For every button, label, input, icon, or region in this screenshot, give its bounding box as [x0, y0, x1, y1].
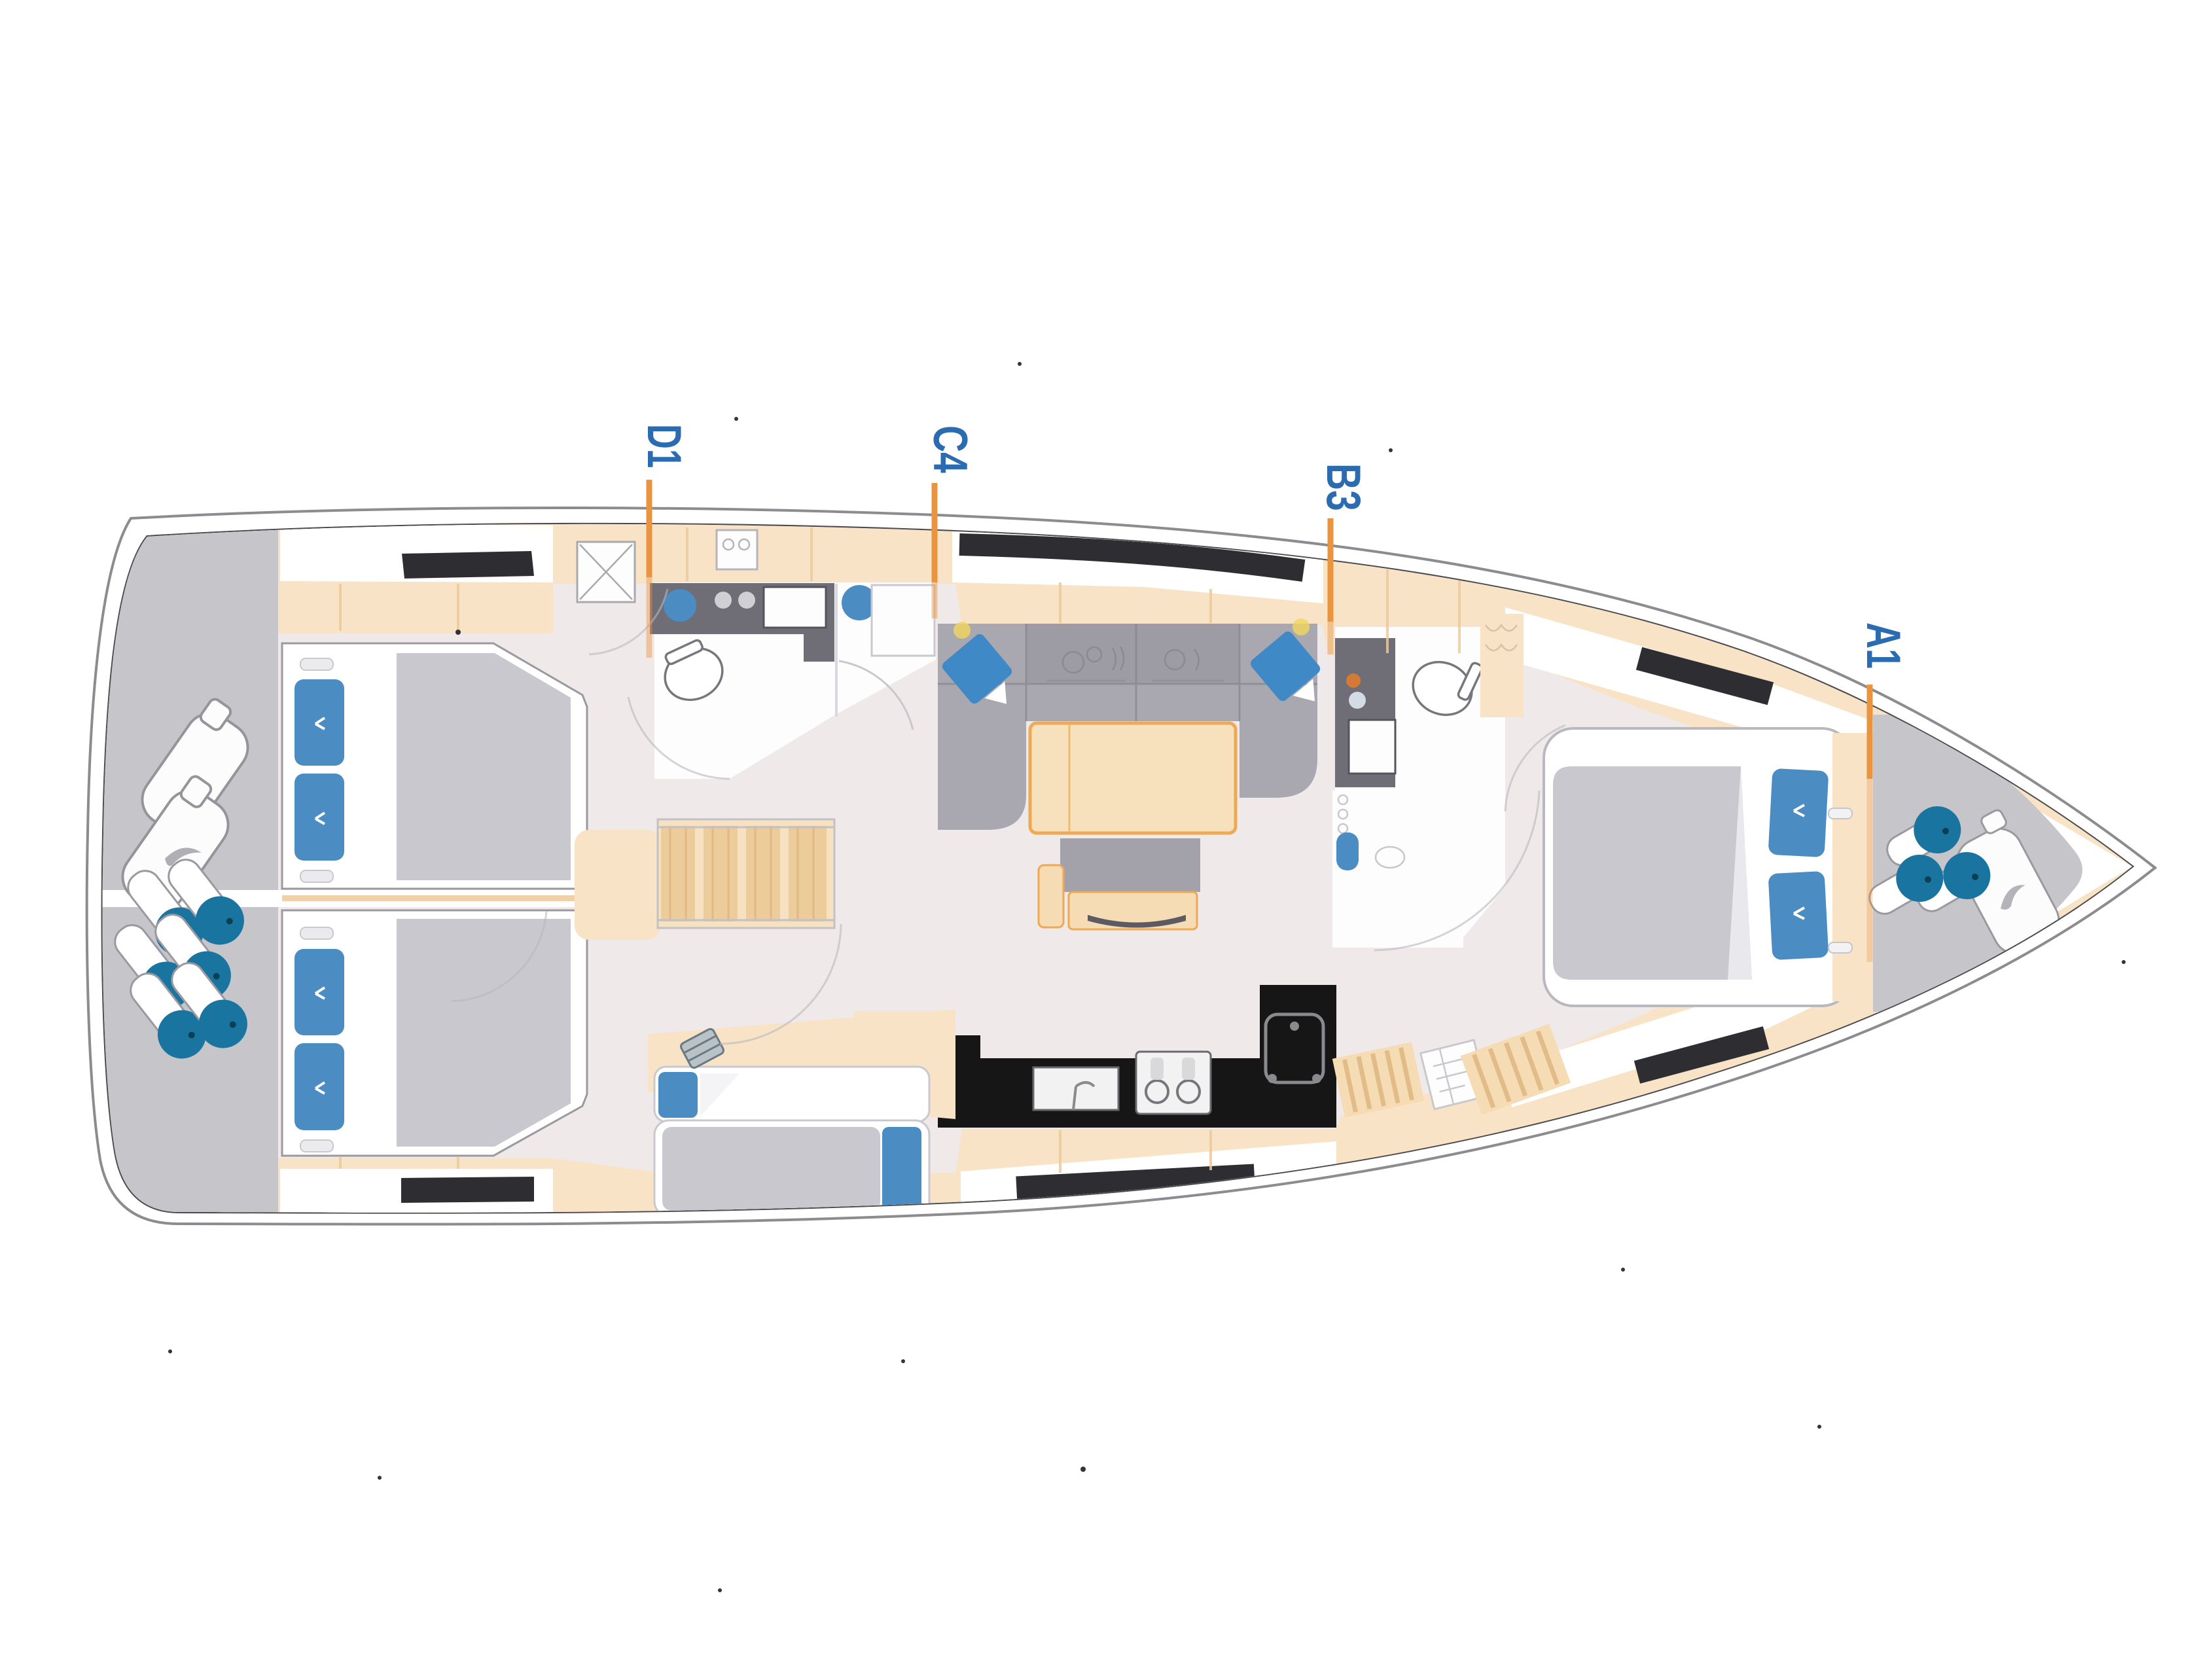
svg-text:D1: D1	[637, 424, 690, 468]
svg-text:A1: A1	[1857, 622, 1910, 669]
svg-text:B3: B3	[1317, 463, 1370, 511]
svg-text:C4: C4	[923, 425, 976, 473]
